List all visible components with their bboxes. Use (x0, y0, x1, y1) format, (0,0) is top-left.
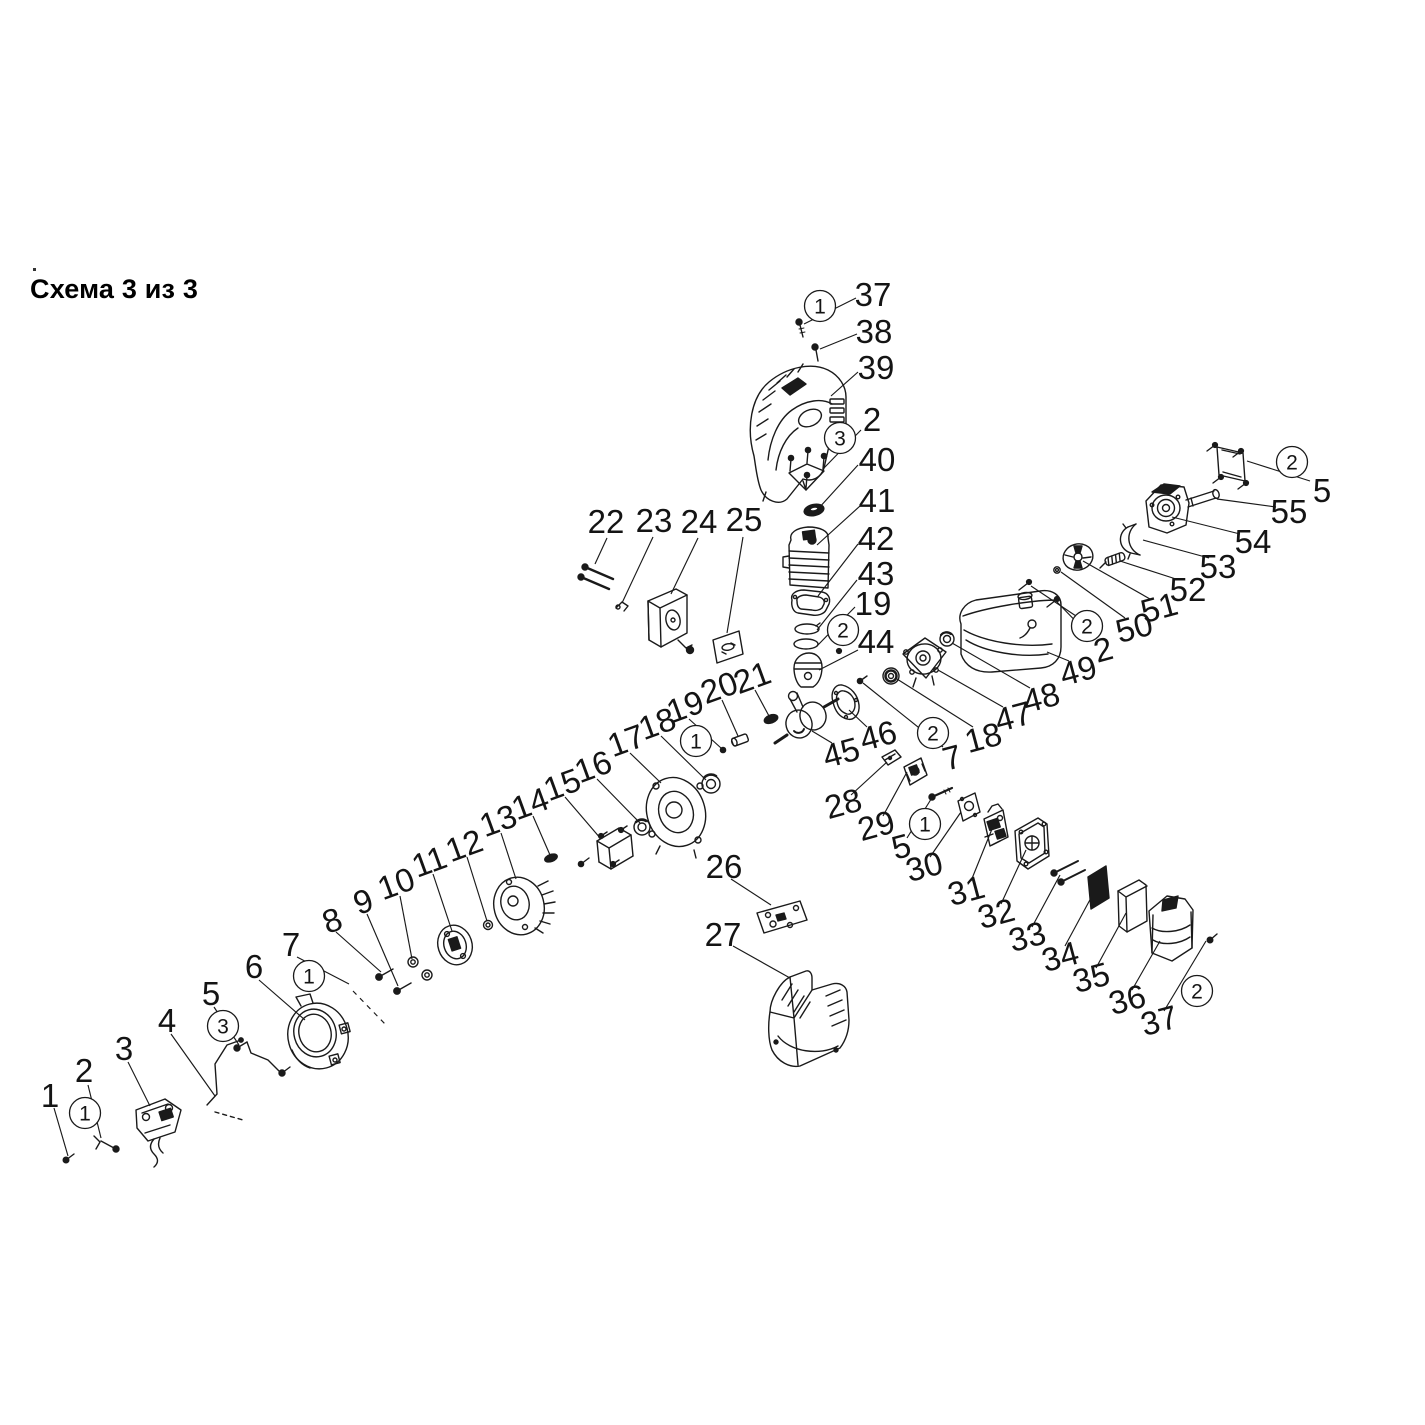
part-41-cylinder (783, 527, 829, 588)
svg-text:3: 3 (217, 1016, 229, 1039)
part-label-6: 6 (245, 948, 263, 985)
part-label-7: 7 (282, 926, 300, 963)
part-18-seal (883, 668, 899, 684)
circled-marker-1: 1 (70, 1098, 101, 1129)
part-label-19: 19 (855, 585, 892, 622)
part-25-gasket-plate (713, 631, 743, 663)
leader-line (817, 506, 860, 545)
part-label-1: 1 (41, 1077, 59, 1114)
part-22-bolts (578, 564, 613, 589)
part-label-4: 4 (158, 1002, 176, 1039)
part-23-clip (616, 602, 628, 611)
part-5-bolt (929, 788, 952, 800)
part-label-55: 55 (1271, 493, 1308, 530)
part-12-nut (484, 921, 493, 930)
part-label-5: 5 (1313, 472, 1331, 509)
circled-marker-1: 1 (910, 809, 941, 840)
part-42-gasket (792, 590, 830, 615)
svg-text:2: 2 (1191, 981, 1203, 1004)
part-label-38: 38 (856, 313, 893, 350)
leader-line (501, 833, 516, 879)
part-label-8: 8 (317, 900, 347, 941)
leader-line (938, 670, 1003, 707)
part-37-screw (1207, 934, 1217, 943)
leader-line (733, 946, 790, 978)
part-7-case-screw (857, 676, 867, 684)
part-27-bottom-cover (769, 971, 849, 1067)
leader-line (597, 779, 640, 823)
part-label-27: 27 (705, 916, 742, 953)
part-19-pin (720, 747, 725, 752)
part-label-5: 5 (202, 975, 220, 1012)
leader-line (128, 1062, 150, 1106)
part-54-55-clutch-drum (1146, 484, 1220, 533)
part-37-top-screw (796, 319, 805, 337)
part-label-30: 30 (902, 844, 947, 889)
part-17-crankcase-half (638, 770, 715, 858)
circled-marker-2: 2 (1072, 611, 1103, 642)
part-14-woodruff-key (544, 852, 589, 866)
part-32-filter-base (1015, 818, 1049, 869)
svg-text:2: 2 (1286, 452, 1298, 475)
part-label-24: 24 (681, 503, 718, 540)
part-16-oil-seal (634, 819, 650, 835)
circled-marker-2: 2 (828, 615, 859, 646)
leader-line (1172, 517, 1240, 534)
part-30-gasket (958, 793, 980, 821)
part-48-bearing (940, 632, 954, 646)
leader-line (467, 857, 487, 921)
part-3-ignition-coil (136, 1099, 181, 1167)
leader-line (565, 797, 601, 839)
part-2-screw-dot (837, 649, 842, 654)
svg-text:1: 1 (79, 1103, 91, 1126)
exploded-parts-diagram-page: Схема 3 из 3 (0, 0, 1425, 1425)
part-50-nut (1054, 567, 1060, 573)
part-6-fan-housing (280, 994, 355, 1076)
part-43-piston-rings (794, 623, 820, 649)
part-26-plate (757, 901, 807, 933)
part-47-crankcase (903, 638, 946, 687)
circled-marker-3: 3 (208, 1011, 239, 1042)
circled-marker-1: 1 (681, 726, 712, 757)
part-label-2: 2 (75, 1052, 93, 1089)
part-38-screw (812, 344, 818, 361)
diagram-canvas: 1234567891011121314151617181920212223242… (0, 0, 1425, 1425)
part-11-clutch-shoes (433, 921, 478, 970)
part-51-clutch-rotor (1060, 541, 1096, 574)
part-52-spring (1100, 552, 1126, 568)
part-35-filter-element (1118, 880, 1147, 932)
part-label-42: 42 (858, 520, 895, 557)
leader-line (722, 700, 738, 736)
leader-line (630, 753, 661, 783)
part-label-37: 37 (1137, 998, 1182, 1043)
part-label-41: 41 (859, 482, 896, 519)
part-label-53: 53 (1200, 548, 1237, 585)
svg-text:1: 1 (303, 966, 315, 989)
part-label-23: 23 (636, 502, 673, 539)
part-20-pin (731, 734, 749, 747)
svg-text:2: 2 (927, 723, 939, 746)
leader-line (171, 1034, 215, 1096)
stray-dot (33, 268, 36, 271)
svg-text:1: 1 (690, 731, 702, 754)
leader-line (533, 816, 550, 855)
part-label-40: 40 (859, 441, 896, 478)
leader-line (831, 372, 858, 396)
part-29-insulator (904, 758, 927, 785)
leader-line (820, 334, 857, 349)
part-5-bracket-frame (1207, 443, 1248, 489)
part-44-piston (794, 653, 822, 687)
part-label-9: 9 (348, 881, 378, 922)
part-label-49: 49 (1056, 648, 1101, 693)
leader-line (433, 874, 452, 931)
part-7-8-9-screws-washers (376, 957, 432, 994)
part-1-screw (63, 1154, 74, 1163)
svg-text:3: 3 (834, 428, 846, 451)
circled-marker-2: 2 (1182, 976, 1213, 1007)
leader-line (336, 932, 381, 972)
page-title: Схема 3 из 3 (30, 274, 198, 305)
circled-marker-2: 2 (918, 718, 949, 749)
part-label-45: 45 (819, 730, 864, 775)
leader-line (400, 896, 412, 959)
part-number-labels: 1234567891011121314151617181920212223242… (41, 276, 1331, 1114)
circled-marker-2: 2 (1277, 447, 1308, 478)
part-46-gasket (832, 685, 859, 719)
part-34-foam-filter (1088, 866, 1109, 909)
leader-line (727, 537, 743, 633)
part-label-44: 44 (858, 623, 895, 660)
part-label-48: 48 (1019, 675, 1064, 720)
svg-text:1: 1 (814, 296, 826, 319)
part-15-bracket (597, 826, 633, 869)
part-label-54: 54 (1235, 523, 1272, 560)
part-label-25: 25 (726, 501, 763, 538)
leader-line (595, 538, 607, 564)
leader-line (1217, 499, 1276, 507)
part-45-crankshaft (775, 692, 838, 744)
part-21-key (763, 713, 779, 725)
part-label-37: 37 (855, 276, 892, 313)
part-2-40-mount-plate (788, 447, 826, 490)
circled-marker-1: 1 (294, 961, 325, 992)
part-13-flywheel (487, 872, 555, 941)
part-49-fuel-tank (960, 591, 1061, 672)
part-label-2: 2 (863, 401, 881, 438)
svg-text:2: 2 (837, 620, 849, 643)
svg-text:2: 2 (1081, 616, 1093, 639)
circled-marker-3: 3 (825, 423, 856, 454)
part-24-muffler (648, 589, 694, 654)
part-label-26: 26 (706, 848, 743, 885)
leader-line (353, 991, 386, 1025)
leader-line (54, 1108, 68, 1156)
part-2-screw-bracket (94, 1136, 119, 1152)
part-5-rod-with-screws (234, 1042, 290, 1076)
part-label-22: 22 (588, 503, 625, 540)
circled-marker-1: 1 (805, 291, 836, 322)
leader-line (622, 537, 653, 603)
leader-line (818, 544, 858, 596)
svg-text:1: 1 (919, 814, 931, 837)
leader-line (671, 538, 698, 594)
part-36-filter-cover (1149, 896, 1193, 961)
part-18-bearing (702, 775, 720, 793)
part-label-3: 3 (115, 1030, 133, 1067)
part-label-39: 39 (858, 349, 895, 386)
